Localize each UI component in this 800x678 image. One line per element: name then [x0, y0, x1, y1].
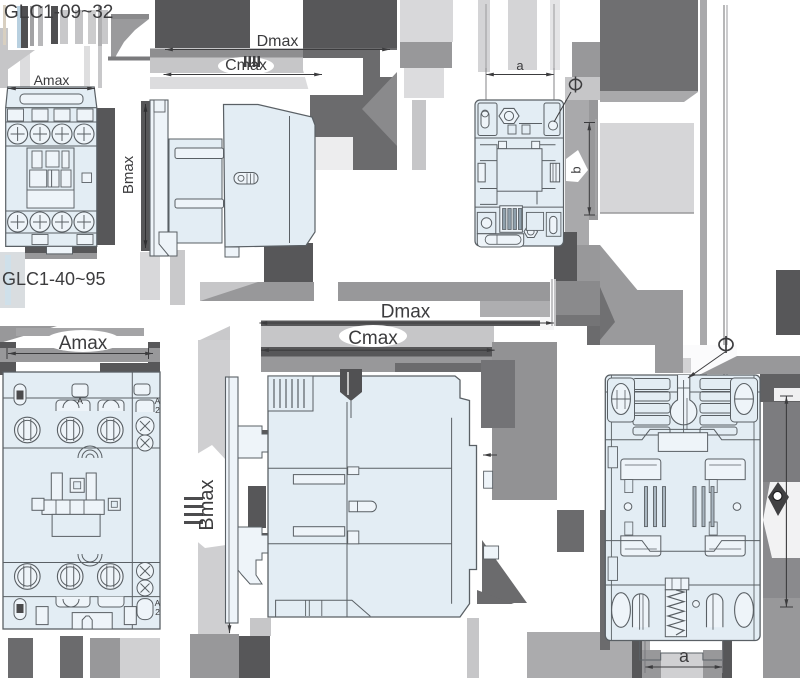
svg-text:Cmax: Cmax: [225, 57, 267, 74]
svg-text:Amax: Amax: [34, 72, 70, 88]
svg-text:Bmax: Bmax: [196, 479, 218, 530]
svg-text:GLC1-09~32: GLC1-09~32: [4, 2, 113, 23]
svg-text:a: a: [516, 58, 524, 73]
svg-text:2: 2: [155, 405, 160, 415]
svg-text:Dmax: Dmax: [257, 33, 299, 50]
svg-text:Bmax: Bmax: [120, 155, 137, 194]
svg-text:Amax: Amax: [59, 333, 108, 354]
svg-text:b: b: [569, 166, 584, 173]
svg-text:Cmax: Cmax: [348, 328, 398, 349]
svg-text:2: 2: [155, 607, 160, 617]
svg-text:Dmax: Dmax: [381, 302, 431, 323]
svg-text:GLC1-40~95: GLC1-40~95: [2, 269, 106, 289]
svg-text:A: A: [77, 396, 83, 406]
svg-text:a: a: [679, 646, 690, 666]
